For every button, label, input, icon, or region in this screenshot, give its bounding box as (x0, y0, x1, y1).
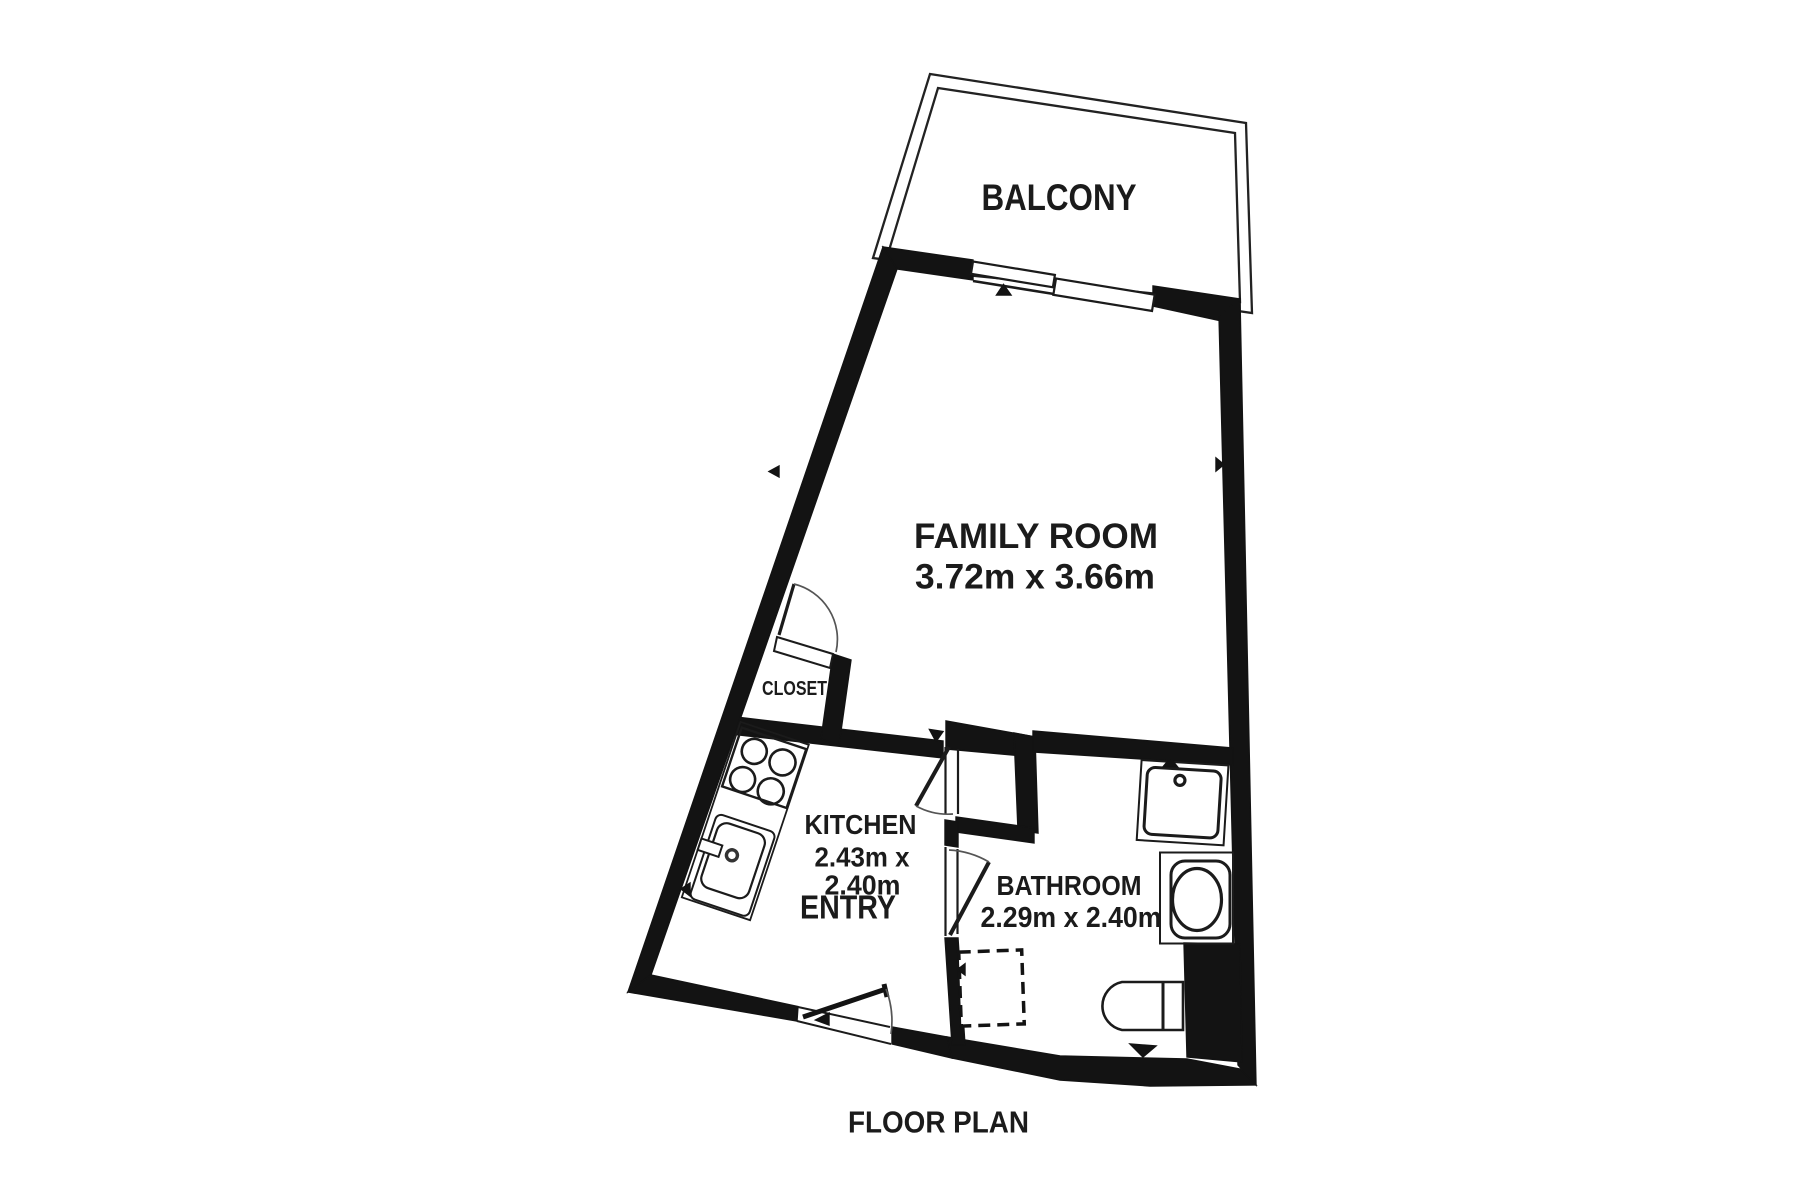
svg-text:2.29m x 2.40m: 2.29m x 2.40m (981, 902, 1162, 934)
svg-text:BATHROOM: BATHROOM (997, 870, 1142, 901)
svg-text:KITCHEN: KITCHEN (805, 809, 917, 840)
svg-text:3.72m x 3.66m: 3.72m x 3.66m (915, 557, 1155, 597)
svg-text:FLOOR PLAN: FLOOR PLAN (848, 1104, 1029, 1139)
svg-text:CLOSET: CLOSET (762, 677, 827, 700)
svg-text:FAMILY ROOM: FAMILY ROOM (914, 516, 1158, 556)
svg-text:BALCONY: BALCONY (982, 177, 1137, 218)
svg-text:ENTRY: ENTRY (800, 890, 896, 927)
svg-text:2.43m x: 2.43m x (815, 842, 910, 873)
